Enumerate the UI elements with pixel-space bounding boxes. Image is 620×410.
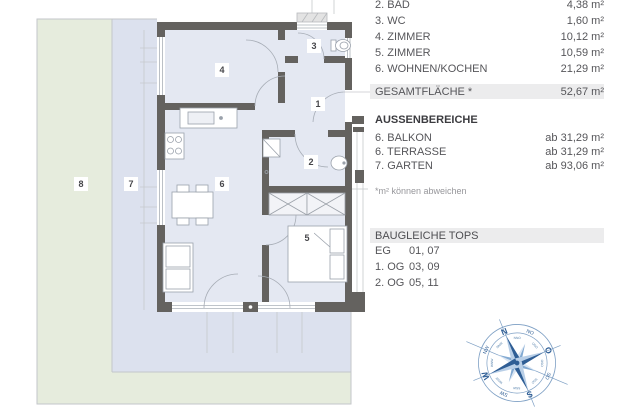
svg-text:N: N [500,326,509,338]
vent-hatch [297,13,327,22]
svg-text:SSW: SSW [513,386,520,390]
identical-tops-row: 1. OG03, 09 [370,259,620,275]
area-footnote: *m² können abweichen [370,184,620,198]
room-number-label: 8 [74,177,88,191]
total-area-row: GESAMTFLÄCHE *52,67 m² [370,84,604,99]
wardrobe-band [269,193,345,215]
room-area-row: 3. WC1,60 m² [370,13,620,29]
room-number-label: 3 [307,39,321,53]
bed-icon [288,226,347,282]
room-number-label: 6 [215,177,229,191]
compass-rose-icon: N O S W NO SO SW NW NNO ONO OSO SSO SSW [462,308,572,408]
room-number-label: 7 [124,177,138,191]
room-number-label: 1 [311,97,325,111]
floor-plan-drawing [0,0,370,410]
svg-text:NNW: NNW [495,341,503,349]
room-area-row: 6. WOHNEN/KOCHEN21,29 m² [370,61,620,77]
svg-text:OSO: OSO [540,360,544,368]
identical-tops-row: 2. OG05, 11 [370,275,620,291]
svg-text:WNW: WNW [490,359,494,367]
identical-tops-header: BAUGLEICHE TOPS [370,228,604,243]
pillar-dot [249,305,253,309]
room-area-row: 2. BAD4,38 m² [370,0,620,13]
outdoor-area-row: 6. TERRASSEab 31,29 m² [370,145,620,159]
floor-plan: 12345678 [0,0,370,410]
room-number-label: 4 [215,63,229,77]
room-number-label: 5 [300,231,314,245]
svg-text:NO: NO [525,328,534,336]
outdoor-area-row: 6. BALKONab 31,29 m² [370,131,620,145]
svg-text:NW: NW [482,345,491,355]
stove-icon [165,133,184,159]
svg-text:WSW: WSW [495,376,504,385]
svg-text:NNO: NNO [514,336,522,340]
room-area-row: 5. ZIMMER10,59 m² [370,45,620,61]
outdoor-areas-header: AUSSENBEREICHE [370,112,620,127]
room-number-label: 2 [304,155,318,169]
floorplan-page: 12345678 2. BAD4,38 m² 3. WC1,60 m² 4. Z… [0,0,620,410]
svg-text:O: O [543,345,555,355]
sofa-icon [163,243,193,292]
svg-text:SSO: SSO [530,377,538,385]
svg-text:SW: SW [499,389,509,398]
outdoor-area-row: 7. GARTENab 93,06 m² [370,159,620,173]
dining-table-icon [172,192,213,218]
svg-text:S: S [525,389,534,401]
svg-text:SO: SO [543,371,551,380]
room-area-row: 4. ZIMMER10,12 m² [370,29,620,45]
room-area-list: 2. BAD4,38 m² 3. WC1,60 m² 4. ZIMMER10,1… [370,0,620,99]
svg-text:W: W [479,369,492,381]
identical-tops-row: EG01, 07 [370,243,620,259]
svg-text:ONO: ONO [531,341,539,349]
